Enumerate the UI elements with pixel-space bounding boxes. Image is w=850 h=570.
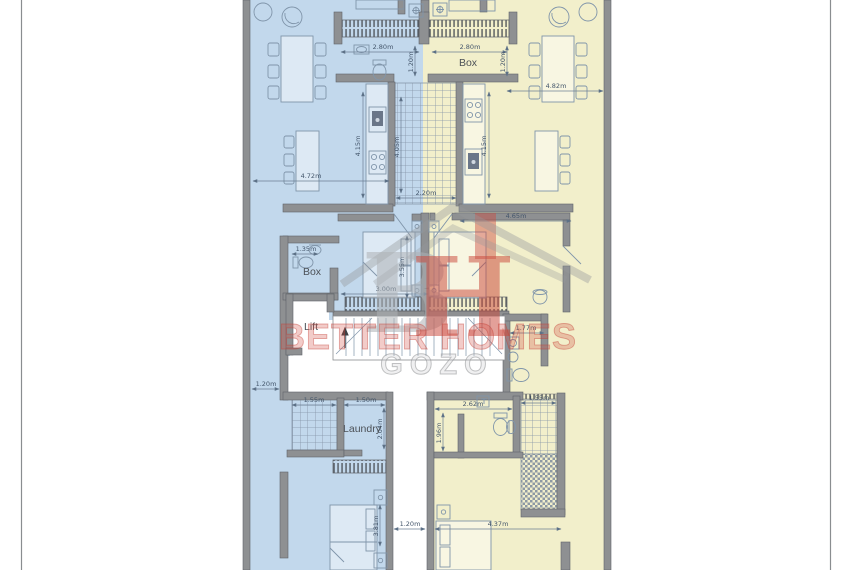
tiled-shaft-top: [395, 83, 457, 204]
svg-text:2.80m: 2.80m: [460, 43, 481, 51]
svg-text:2.20m: 2.20m: [416, 189, 437, 197]
svg-text:2.62m: 2.62m: [463, 400, 484, 408]
svg-text:1.77m: 1.77m: [516, 324, 537, 332]
floor-plan-sheet: 2.80m 2.80m 1.20m 1.20m 4.15m 4.05m 4.15…: [0, 0, 850, 570]
svg-text:1.20m: 1.20m: [407, 52, 415, 73]
svg-text:1.20m: 1.20m: [400, 520, 421, 528]
svg-text:2.80m: 2.80m: [373, 43, 394, 51]
dim-rear-gap: 1.20m: [394, 520, 425, 529]
svg-text:4.37m: 4.37m: [488, 520, 509, 528]
staircase: [333, 316, 505, 360]
svg-text:3.81m: 3.81m: [372, 516, 380, 537]
svg-text:4.82m: 4.82m: [546, 82, 567, 90]
svg-text:4.65m: 4.65m: [506, 212, 527, 220]
room-label-box-right: Box: [459, 57, 478, 69]
svg-text:3.00m: 3.00m: [376, 285, 397, 293]
tiled-shaft-right: [521, 394, 557, 510]
svg-text:1.35m: 1.35m: [296, 245, 317, 253]
dim-alley-left: 1.20m: [252, 380, 279, 389]
svg-text:1.20m: 1.20m: [256, 380, 277, 388]
svg-text:4.72m: 4.72m: [301, 172, 322, 180]
tiled-shaft-left: [292, 398, 337, 450]
room-label-laundry: Laundry: [343, 423, 382, 435]
svg-text:4.15m: 4.15m: [480, 136, 488, 157]
svg-text:1.55m: 1.55m: [529, 394, 550, 402]
room-label-box-left: Box: [303, 266, 322, 278]
svg-text:1.50m: 1.50m: [356, 396, 377, 404]
room-label-lift: Lift: [304, 321, 318, 333]
svg-text:1.20m: 1.20m: [499, 52, 507, 73]
svg-text:1.96m: 1.96m: [435, 423, 443, 444]
svg-text:4.05m: 4.05m: [393, 137, 401, 158]
svg-text:4.15m: 4.15m: [354, 136, 362, 157]
svg-text:1.55m: 1.55m: [304, 396, 325, 404]
plan-svg: 2.80m 2.80m 1.20m 1.20m 4.15m 4.05m 4.15…: [0, 0, 850, 570]
kitchen-left: [366, 84, 388, 204]
svg-text:3.55m: 3.55m: [398, 257, 406, 278]
dim-bath-left: 1.35m: [292, 245, 318, 254]
